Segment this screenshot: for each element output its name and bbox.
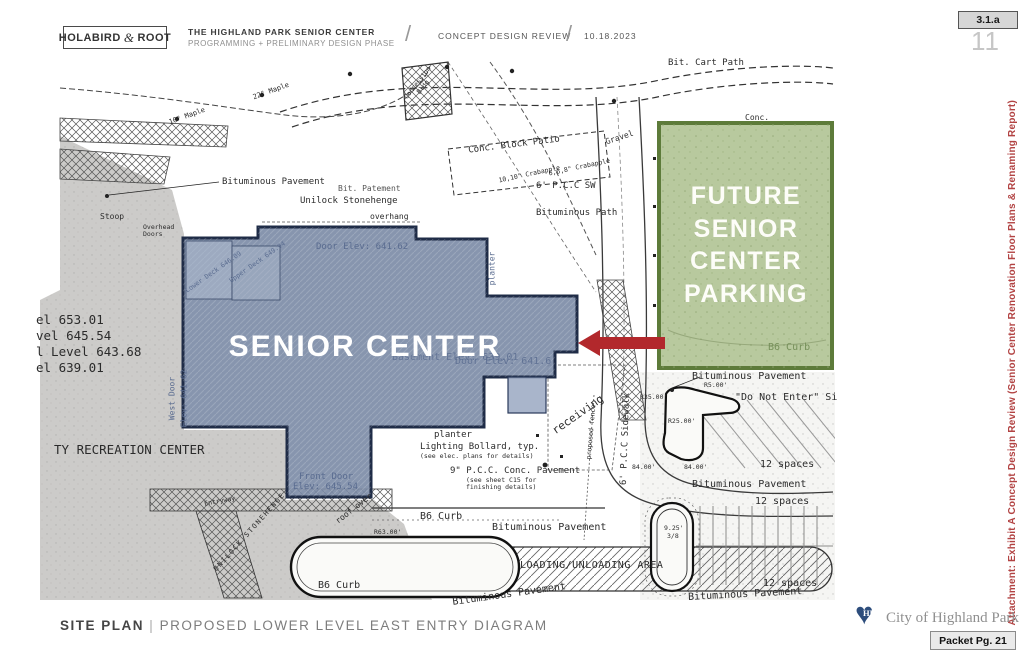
plan-label-west-door: West Door bbox=[168, 354, 177, 444]
caption-section: SITE PLAN bbox=[60, 618, 144, 633]
plan-label-crabapple-2: 6,6,8" Crabapple bbox=[548, 157, 611, 178]
plan-label-roof-over: roof over bbox=[334, 492, 374, 526]
parking-line-1: FUTURE bbox=[662, 180, 830, 213]
plan-label-level-639: el 639.01 bbox=[36, 360, 104, 375]
plan-label-gravel: Gravel bbox=[604, 129, 634, 146]
plan-label-lighting-bollard: Lighting Bollard, typ. bbox=[420, 442, 539, 452]
plan-label-maple-22: 22" Maple bbox=[252, 81, 290, 101]
senior-center-label: SENIOR CENTER bbox=[205, 330, 525, 364]
east-entry-arrow bbox=[578, 330, 665, 356]
page-subtitle: PROGRAMMING + PRELIMINARY DESIGN PHASE bbox=[188, 39, 395, 48]
attachment-note-vertical: Attachment: Exhibit A Concept Design Rev… bbox=[1007, 100, 1018, 625]
plan-label-bituminous-pavement-e2: Bituminous Pavement bbox=[692, 479, 806, 490]
plan-label-conc: Conc. bbox=[745, 113, 769, 122]
city-heart-initials: HP bbox=[863, 608, 875, 618]
future-parking-label: FUTURE SENIOR CENTER PARKING bbox=[662, 180, 830, 310]
header-separator: / bbox=[405, 21, 411, 47]
caption-divider: | bbox=[149, 618, 154, 633]
page-title: THE HIGHLAND PARK SENIOR CENTER bbox=[188, 27, 375, 37]
plan-label-entryway: Entryway bbox=[204, 494, 236, 507]
plan-label-r35: R35.00' bbox=[640, 393, 667, 401]
plan-label-r63: R63.00' bbox=[374, 528, 401, 536]
parking-line-3: CENTER bbox=[662, 245, 830, 278]
plan-label-level-653: el 653.01 bbox=[36, 312, 104, 327]
plan-label-84a: 84.00' bbox=[632, 463, 655, 471]
plan-label-do-not-enter: "Do Not Enter" Si bbox=[735, 392, 837, 403]
city-name: City of Highland Park bbox=[886, 610, 1019, 627]
packet-page-badge: Packet Pg. 21 bbox=[930, 631, 1016, 650]
parking-line-2: SENIOR bbox=[662, 213, 830, 246]
plan-label-loading-area: LOADING/UNLOADING AREA bbox=[520, 560, 663, 571]
plan-label-overhang: overhang bbox=[370, 212, 409, 221]
parking-line-4: PARKING bbox=[662, 278, 830, 311]
plan-label-dim-925: 9.25' bbox=[664, 524, 684, 532]
logo-text-left: HOLABIRD bbox=[59, 32, 121, 44]
plan-label-stoop: Stoop bbox=[100, 212, 124, 221]
plan-label-level-643: l Level 643.68 bbox=[36, 344, 141, 359]
plan-label-bit-cart-path: Bit. Cart Path bbox=[668, 58, 744, 68]
plan-label-r25: R25.00' bbox=[668, 417, 695, 425]
holabird-root-logo: HOLABIRD&ROOT bbox=[63, 26, 167, 49]
plan-label-planter-east: planter bbox=[488, 229, 497, 309]
plan-label-b6-curb-sw: B6 Curb bbox=[318, 580, 360, 591]
plan-label-maple-10: 10" Maple bbox=[168, 106, 206, 126]
page-number: 11 bbox=[971, 26, 1000, 57]
plan-label-b6-curb-mid: B6 Curb bbox=[420, 511, 462, 522]
plan-label-concession-bldg: Concession Bldg bbox=[401, 63, 441, 108]
plan-label-bit-patement: Bit. Patement bbox=[338, 184, 401, 193]
plan-label-front-door-elev: Elev: 645.54 bbox=[293, 482, 358, 492]
plan-label-door-elev-top: Door Elev: 641.62 bbox=[316, 242, 408, 252]
plan-label-recreation-center: TY RECREATION CENTER bbox=[54, 442, 205, 457]
plan-label-b6-curb-green: B6 Curb bbox=[768, 342, 810, 353]
plan-label-dim-38: 3/8 bbox=[667, 532, 679, 540]
logo-text-right: ROOT bbox=[137, 32, 171, 44]
caption-description: PROPOSED LOWER LEVEL EAST ENTRY DIAGRAM bbox=[160, 618, 548, 633]
elevator-footprint bbox=[508, 377, 546, 413]
plan-label-pcc-sidewalk: 6' P.C.C Sidewalk bbox=[618, 381, 632, 496]
logo-ampersand: & bbox=[124, 30, 135, 46]
plan-label-pcc-sw: 6' P.C.C SW bbox=[536, 181, 596, 191]
plan-label-front-door: Front Door bbox=[299, 472, 353, 482]
plan-label-lighting-bollard-note: (see elec. plans for details) bbox=[420, 452, 534, 460]
plan-label-pcc-conc-pavement: 9" P.C.C. Conc. Pavement bbox=[450, 466, 580, 476]
plan-label-r5: R5.00' bbox=[704, 381, 727, 389]
plan-label-bituminous-pavement-e3: Bituminous Pavement bbox=[688, 586, 803, 603]
plan-label-bituminous-pavement-nw: Bituminous Pavement bbox=[222, 177, 325, 187]
plan-label-pcc-conc-note: (see sheet C15 for finishing details) bbox=[466, 477, 548, 492]
header-separator: / bbox=[566, 21, 572, 47]
plan-label-upper-deck: Upper Deck 649.94 bbox=[228, 240, 287, 285]
plan-label-bituminous-path: Bituminous Path bbox=[536, 208, 617, 218]
plan-label-84b: 84.00' bbox=[684, 463, 707, 471]
plan-label-unilock-stonehenge: Unilock Stonehenge bbox=[300, 196, 398, 206]
plan-label-planter-south: planter bbox=[434, 430, 472, 440]
plan-label-12-spaces-1: 12 spaces bbox=[760, 459, 814, 470]
slide-caption: SITE PLAN | PROPOSED LOWER LEVEL EAST EN… bbox=[60, 618, 548, 633]
review-date: 10.18.2023 bbox=[584, 31, 637, 41]
plan-label-bituminous-pavement-mid: Bituminous Pavement bbox=[492, 522, 606, 533]
plan-label-bituminous-pavement-s: Bituminous Pavement bbox=[452, 581, 567, 608]
review-phase-label: CONCEPT DESIGN REVIEW bbox=[438, 31, 571, 41]
plan-label-conc-block-patio: Conc. Block Patio bbox=[468, 134, 561, 155]
plan-label-level-645: vel 645.54 bbox=[36, 328, 111, 343]
plan-label-12-spaces-2: 12 spaces bbox=[755, 496, 809, 507]
plan-label-west-door-elev: Elev: 641.62 bbox=[180, 354, 189, 444]
plan-label-overhead-doors: Overhead Doors bbox=[143, 224, 183, 239]
